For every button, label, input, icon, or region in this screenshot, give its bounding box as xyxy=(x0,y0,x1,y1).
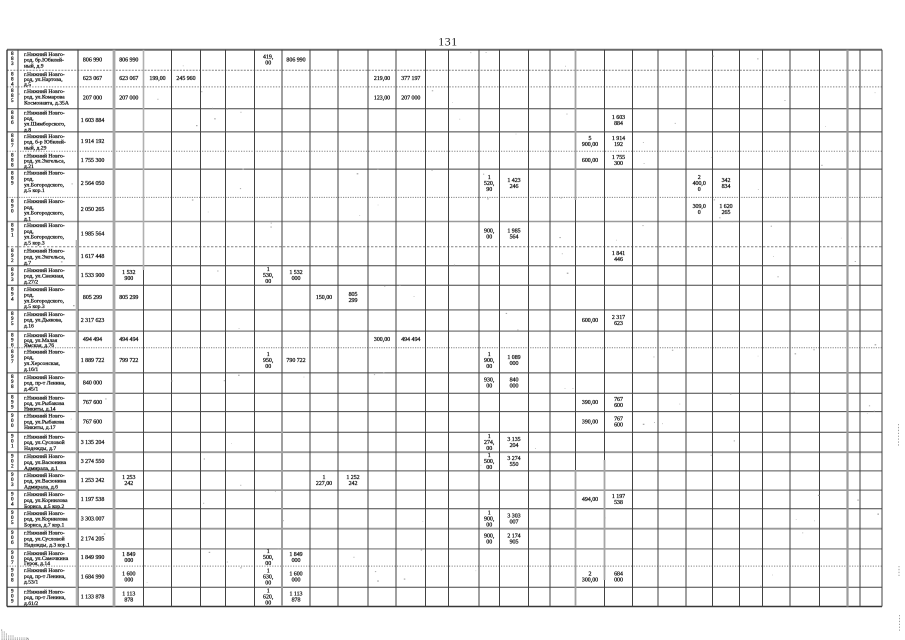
svg-text:564: 564 xyxy=(510,235,519,241)
svg-text:9: 9 xyxy=(11,405,14,411)
svg-text:150,00: 150,00 xyxy=(316,295,332,301)
svg-text:494,00: 494,00 xyxy=(582,497,598,503)
svg-text:1 849 990: 1 849 990 xyxy=(81,555,105,561)
svg-text:007: 007 xyxy=(510,519,519,525)
svg-text:00: 00 xyxy=(486,465,492,471)
svg-text:8: 8 xyxy=(11,384,14,390)
svg-text:д.5 кор.3: д.5 кор.3 xyxy=(24,241,45,247)
svg-text:227,00: 227,00 xyxy=(316,481,332,487)
svg-text:494 494: 494 494 xyxy=(83,337,102,343)
svg-text:00: 00 xyxy=(265,61,271,67)
svg-text:д.61/2: д.61/2 xyxy=(24,601,38,607)
svg-text:00: 00 xyxy=(265,601,271,607)
svg-text:1: 1 xyxy=(11,233,14,239)
svg-text:00: 00 xyxy=(486,522,492,528)
svg-text:0: 0 xyxy=(11,423,14,429)
svg-text:5: 5 xyxy=(11,321,14,327)
svg-text:00: 00 xyxy=(486,446,492,452)
svg-text:600: 600 xyxy=(614,423,623,429)
svg-text:0: 0 xyxy=(698,210,701,216)
svg-text:ный, д.9: ный, д.9 xyxy=(24,62,44,69)
svg-text:805 299: 805 299 xyxy=(119,295,138,301)
svg-text:00: 00 xyxy=(486,384,492,390)
svg-text:1 133 878: 1 133 878 xyxy=(81,595,105,601)
svg-text:3 274 550: 3 274 550 xyxy=(81,459,105,465)
svg-text:д.45/1: д.45/1 xyxy=(24,387,38,393)
svg-text:9: 9 xyxy=(11,180,14,186)
svg-text:905: 905 xyxy=(510,539,519,545)
svg-text:550: 550 xyxy=(510,462,519,468)
svg-text:000: 000 xyxy=(124,577,133,583)
svg-text:6: 6 xyxy=(11,540,14,546)
svg-text:300,00: 300,00 xyxy=(582,577,598,583)
svg-text:840 000: 840 000 xyxy=(83,381,102,387)
svg-text:207 000: 207 000 xyxy=(119,95,138,101)
svg-text:000: 000 xyxy=(510,384,519,390)
svg-text:Адмирала, д.1: Адмирала, д.1 xyxy=(24,466,58,472)
svg-text:900,00: 900,00 xyxy=(582,142,598,148)
svg-text:5: 5 xyxy=(11,520,14,526)
svg-text:Никиты, д.14: Никиты, д.14 xyxy=(24,407,56,413)
svg-text:3 303 007: 3 303 007 xyxy=(81,516,105,522)
svg-text:7: 7 xyxy=(11,560,14,566)
svg-text:8: 8 xyxy=(11,577,14,583)
svg-text:245 960: 245 960 xyxy=(176,76,195,82)
svg-text:2 564 050: 2 564 050 xyxy=(81,181,105,187)
svg-text:6: 6 xyxy=(11,120,14,126)
svg-text:1 755 300: 1 755 300 xyxy=(81,158,105,164)
svg-text:600,00: 600,00 xyxy=(582,158,598,164)
svg-text:Надежды, д.7: Надежды, д.7 xyxy=(24,446,56,452)
svg-text:246: 246 xyxy=(510,184,519,190)
svg-text:5: 5 xyxy=(11,98,14,104)
svg-text:1: 1 xyxy=(11,444,14,450)
svg-text:1 617 448: 1 617 448 xyxy=(81,254,105,260)
svg-text:д.1: д.1 xyxy=(24,216,31,222)
svg-text:2 174 205: 2 174 205 xyxy=(81,536,105,542)
svg-text:199,00: 199,00 xyxy=(149,76,165,82)
svg-text:000: 000 xyxy=(292,276,301,282)
svg-text:д.21: д.21 xyxy=(24,164,34,170)
svg-text:Героя, д.14: Героя, д.14 xyxy=(24,561,50,567)
svg-text:623 067: 623 067 xyxy=(83,76,102,82)
svg-text:623 067: 623 067 xyxy=(119,76,138,82)
svg-text:00: 00 xyxy=(486,235,492,241)
svg-text:1 197 538: 1 197 538 xyxy=(81,497,105,503)
svg-text:4: 4 xyxy=(11,501,14,507)
svg-text:806 990: 806 990 xyxy=(286,58,305,64)
svg-text:000: 000 xyxy=(292,558,301,564)
svg-text:265: 265 xyxy=(722,210,731,216)
svg-text:000: 000 xyxy=(510,361,519,367)
svg-text:494 494: 494 494 xyxy=(119,337,138,343)
svg-text:300,00: 300,00 xyxy=(374,337,390,343)
svg-text:790 722: 790 722 xyxy=(286,358,305,364)
svg-text:3: 3 xyxy=(11,482,14,488)
svg-text:131: 131 xyxy=(438,35,458,49)
svg-text:000: 000 xyxy=(292,577,301,583)
svg-text:767 600: 767 600 xyxy=(83,420,102,426)
svg-text:00: 00 xyxy=(486,364,492,370)
svg-text:Бориса, д.5 кор.2: Бориса, д.5 кор.2 xyxy=(24,504,64,510)
svg-text:390,00: 390,00 xyxy=(582,420,598,426)
svg-text:2: 2 xyxy=(11,258,14,264)
svg-text:600,00: 600,00 xyxy=(582,318,598,324)
svg-text:д.5 кор.3: д.5 кор.3 xyxy=(24,304,45,310)
svg-text:Бориса, д.7 кор.1: Бориса, д.7 кор.1 xyxy=(24,522,64,528)
svg-text:878: 878 xyxy=(292,598,301,604)
svg-text:1 841: 1 841 xyxy=(612,251,625,257)
svg-text:538: 538 xyxy=(614,500,623,506)
svg-text:494 494: 494 494 xyxy=(401,337,420,343)
svg-text:4: 4 xyxy=(11,296,14,302)
svg-text:000: 000 xyxy=(614,577,623,583)
svg-text:00: 00 xyxy=(265,561,271,567)
svg-text:д.5 кор.1: д.5 кор.1 xyxy=(24,188,45,194)
svg-text:9: 9 xyxy=(11,599,14,605)
svg-text:00: 00 xyxy=(265,580,271,586)
svg-text:д.5: д.5 xyxy=(24,82,31,88)
svg-text:1 603 884: 1 603 884 xyxy=(81,118,105,124)
svg-text:90: 90 xyxy=(486,187,492,193)
svg-text:600: 600 xyxy=(614,403,623,409)
svg-text:2 317 623: 2 317 623 xyxy=(81,318,105,324)
svg-text:623: 623 xyxy=(614,321,623,327)
svg-text:900: 900 xyxy=(124,276,133,282)
svg-text:Ямская, д.76: Ямская, д.76 xyxy=(24,343,54,349)
svg-text:3: 3 xyxy=(11,277,14,283)
svg-text:834: 834 xyxy=(722,184,731,190)
svg-text:д.53/1: д.53/1 xyxy=(24,580,38,586)
svg-text:7: 7 xyxy=(11,359,14,365)
svg-text:207 000: 207 000 xyxy=(83,95,102,101)
svg-text:192: 192 xyxy=(614,142,623,148)
svg-text:219,00: 219,00 xyxy=(374,76,390,82)
svg-text:806 990: 806 990 xyxy=(119,58,138,64)
svg-text:д.7: д.7 xyxy=(24,260,31,266)
svg-text:0: 0 xyxy=(11,209,14,215)
svg-text:4: 4 xyxy=(11,81,14,87)
svg-text:д.16: д.16 xyxy=(24,324,34,330)
svg-text:д.16/1: д.16/1 xyxy=(24,367,38,373)
svg-text:Космонавта, д.35А: Космонавта, д.35А xyxy=(24,101,69,107)
svg-text:2: 2 xyxy=(11,463,14,469)
svg-text:878: 878 xyxy=(124,598,133,604)
svg-text:3: 3 xyxy=(11,61,14,67)
svg-text:806 990: 806 990 xyxy=(83,58,102,64)
svg-text:ный, д.29: ный, д.29 xyxy=(24,145,47,152)
svg-text:3 135 204: 3 135 204 xyxy=(81,440,105,446)
svg-text:2 050 265: 2 050 265 xyxy=(81,207,105,213)
svg-text:Адмирала, д.6: Адмирала, д.6 xyxy=(24,484,58,490)
svg-text:00: 00 xyxy=(265,364,271,370)
svg-text:8: 8 xyxy=(11,163,14,169)
svg-text:1 914 192: 1 914 192 xyxy=(81,139,105,145)
svg-text:390,00: 390,00 xyxy=(582,400,598,406)
svg-text:207 000: 207 000 xyxy=(401,95,420,101)
svg-text:884: 884 xyxy=(614,121,623,127)
svg-text:377 197: 377 197 xyxy=(401,76,420,82)
svg-text:204: 204 xyxy=(510,443,519,449)
svg-text:00: 00 xyxy=(265,279,271,285)
svg-text:Надежды, д.3 кор.1: Надежды, д.3 кор.1 xyxy=(24,542,70,548)
svg-text:123,00: 123,00 xyxy=(374,95,390,101)
svg-text:6: 6 xyxy=(11,342,14,348)
svg-text:Никиты, д.17: Никиты, д.17 xyxy=(24,425,56,431)
svg-text:299: 299 xyxy=(349,298,358,304)
svg-text:242: 242 xyxy=(349,481,358,487)
svg-text:1 985 564: 1 985 564 xyxy=(81,232,105,238)
svg-text:1 889 722: 1 889 722 xyxy=(81,358,105,364)
svg-text:1 684 990: 1 684 990 xyxy=(81,574,105,580)
svg-text:300: 300 xyxy=(614,161,623,167)
svg-text:000: 000 xyxy=(124,558,133,564)
svg-text:7: 7 xyxy=(11,143,14,149)
svg-text:0: 0 xyxy=(698,187,701,193)
svg-text:00: 00 xyxy=(486,539,492,545)
svg-text:1 533 900: 1 533 900 xyxy=(81,273,105,279)
svg-text:д.27/2: д.27/2 xyxy=(24,279,38,285)
svg-text:805 299: 805 299 xyxy=(83,295,102,301)
svg-text:799 722: 799 722 xyxy=(119,358,138,364)
svg-text:242: 242 xyxy=(124,481,133,487)
svg-text:767 600: 767 600 xyxy=(83,400,102,406)
svg-text:446: 446 xyxy=(614,257,623,263)
svg-text:д.8: д.8 xyxy=(24,127,31,133)
svg-text:1 253 242: 1 253 242 xyxy=(81,478,105,484)
